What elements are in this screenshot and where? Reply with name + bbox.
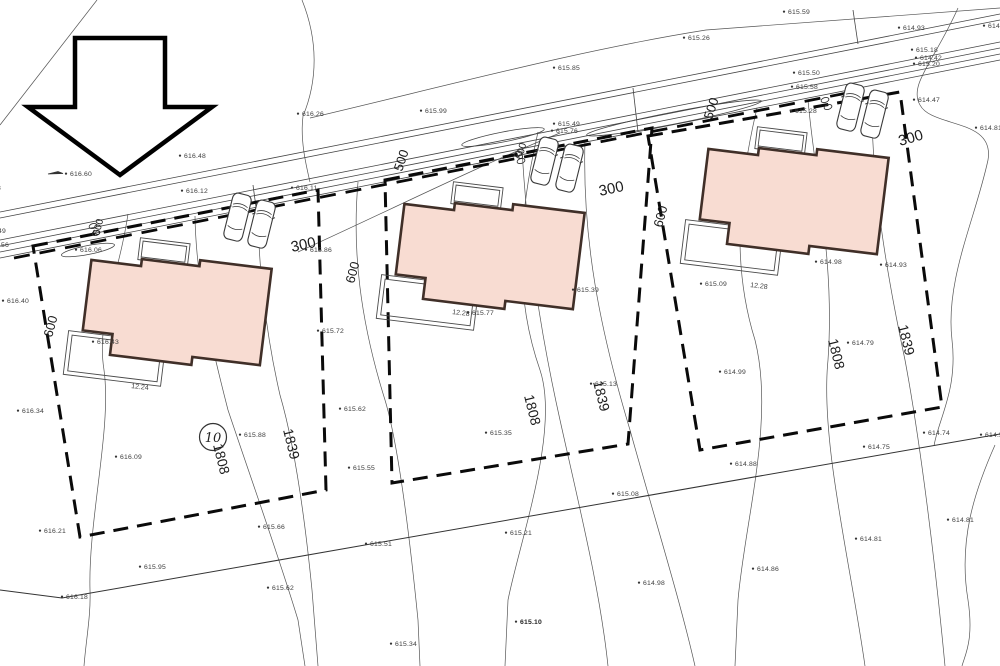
setback-label: 300 <box>597 178 625 200</box>
road-island <box>585 95 762 141</box>
elevation-label: 616.60 <box>70 171 92 178</box>
elevation-dot <box>179 155 181 157</box>
parcel-number-label: 1839 <box>280 427 303 461</box>
elevation-point: 615.55 <box>348 465 375 472</box>
elevation-label: 614.99 <box>724 369 746 376</box>
elevation-dot <box>612 493 614 495</box>
elevation-label: 614.93 <box>885 262 907 269</box>
elevation-point: 614.75 <box>863 444 890 451</box>
elevation-point: 616.49 <box>0 228 6 235</box>
elevation-dot <box>847 342 849 344</box>
house-footprint <box>680 119 890 287</box>
elevation-point: 615.59 <box>783 9 810 16</box>
elevation-point: 615.34 <box>390 641 417 648</box>
elevation-label: 616.11 <box>296 185 318 192</box>
elevation-point: 614.86 <box>752 566 779 573</box>
elevation-point: 616.06 <box>75 247 102 254</box>
elevation-label: 616.26 <box>302 111 324 118</box>
elevation-point: 616.38 <box>0 185 1 192</box>
elevation-dot <box>980 434 982 436</box>
elevation-dot <box>239 434 241 436</box>
elevation-dot <box>572 289 574 291</box>
elevation-label: 614.74 <box>928 430 950 437</box>
elevation-label: 615.55 <box>353 465 375 472</box>
elevation-point: 616.26 <box>297 111 324 118</box>
elevation-point: 615.21 <box>505 530 532 537</box>
elevation-label: 615.50 <box>798 70 820 77</box>
elevation-label: 614.75 <box>868 444 890 451</box>
plot-boundary-3 <box>648 92 942 450</box>
elevation-dot <box>267 587 269 589</box>
road-cross-tick <box>853 10 858 44</box>
elevation-point: 615.08 <box>612 491 639 498</box>
elevation-label: 615.10 <box>520 619 542 626</box>
house-footprint <box>63 230 273 398</box>
elevation-label: 614.88 <box>735 461 757 468</box>
elevation-dot <box>339 408 341 410</box>
elevation-dot <box>923 432 925 434</box>
elevation-point: 615.35 <box>485 430 512 437</box>
elevation-dot <box>317 330 319 332</box>
elevation-point: 616.56 <box>0 242 9 249</box>
elevation-label: 615.62 <box>272 585 294 592</box>
road-cross-tick <box>633 88 638 132</box>
setback-label: 600 <box>514 141 529 160</box>
contour-line <box>310 8 1000 118</box>
elevation-point: 615.49 <box>553 121 580 128</box>
elevation-label: 614.47 <box>918 97 940 104</box>
elevation-label: 616.56 <box>0 242 9 249</box>
elevation-point: 615.62 <box>267 585 294 592</box>
elevation-label: 615.62 <box>344 406 366 413</box>
elevation-label: 615.09 <box>705 281 727 288</box>
elevation-dot <box>390 643 392 645</box>
elevation-point: 615.10 <box>515 619 542 626</box>
elevation-label: 615.99 <box>425 108 447 115</box>
elevation-label: 616.49 <box>0 228 6 235</box>
elevation-label: 615.08 <box>617 491 639 498</box>
benchmark-arrow <box>48 172 63 175</box>
elevation-point: 614.88 <box>730 461 757 468</box>
elevation-label: 614.81 <box>952 517 974 524</box>
elevation-label: 615.76 <box>556 128 578 135</box>
elevation-label: 614.4 <box>988 23 1000 30</box>
elevation-label: 615.58 <box>796 84 818 91</box>
elevation-label: 616.38 <box>0 185 1 192</box>
elevation-dot <box>297 113 299 115</box>
elevation-label: 615.59 <box>788 9 810 16</box>
dimension-label: 12.28 <box>452 309 470 318</box>
dimension-label: 12.28 <box>750 282 768 291</box>
elevation-label: 616.09 <box>120 454 142 461</box>
setback-label: 500 <box>701 96 722 121</box>
elevation-dot <box>348 467 350 469</box>
site-plan-page: 10 616.60616.48616.38616.49616.56616.406… <box>0 0 1000 666</box>
parcel-number-label: 1808 <box>210 442 233 476</box>
elevation-dot <box>139 566 141 568</box>
elevation-dot <box>75 249 77 251</box>
elevation-dot <box>783 11 785 13</box>
elevation-label: 614.98 <box>820 259 842 266</box>
elevation-point: 616.12 <box>181 188 208 195</box>
elevation-dot <box>791 86 793 88</box>
elevation-label: 615.18 <box>916 47 938 54</box>
elevation-point: 615.62 <box>339 406 366 413</box>
elevation-point: 614.74 <box>923 430 950 437</box>
elevation-point: 616.11 <box>291 185 318 192</box>
elevation-dot <box>752 568 754 570</box>
contour-line <box>962 445 995 666</box>
houses <box>63 119 890 398</box>
elevation-point: 615.18 <box>911 47 938 54</box>
elevation-label: 615.21 <box>510 530 532 537</box>
elevation-dot <box>913 63 915 65</box>
site-plan-svg: 10 616.60616.48616.38616.49616.56616.406… <box>0 0 1000 666</box>
elevation-point: 614.5 <box>980 432 1000 439</box>
elevation-dot <box>505 532 507 534</box>
elevation-label: 616.12 <box>186 188 208 195</box>
elevation-label: 615.49 <box>558 121 580 128</box>
elevation-label: 616.06 <box>80 247 102 254</box>
contour-line <box>302 0 314 182</box>
elevation-point: 614.4 <box>983 23 1000 30</box>
setback-label: 600 <box>91 217 106 236</box>
elevation-dot <box>553 67 555 69</box>
elevation-dot <box>790 110 792 112</box>
elevation-dot <box>115 456 117 458</box>
elevation-dot <box>39 530 41 532</box>
elevation-point: 614.93 <box>898 25 925 32</box>
elevation-dot <box>291 187 293 189</box>
setback-label: 300 <box>896 127 925 150</box>
elevation-point: 615.26 <box>683 35 710 42</box>
elevation-dot <box>793 72 795 74</box>
elevation-dot <box>730 463 732 465</box>
elevation-point: 614.81 <box>975 125 1000 132</box>
elevation-point: 615.50 <box>793 70 820 77</box>
elevation-label: 615.85 <box>558 65 580 72</box>
elevation-point: 614.98 <box>815 259 842 266</box>
elevation-dot <box>258 526 260 528</box>
elevation-label: 614.93 <box>903 25 925 32</box>
elevation-dot <box>947 519 949 521</box>
elevation-label: 615.34 <box>395 641 417 648</box>
setback-label: 600 <box>650 204 670 229</box>
elevation-label: 616.34 <box>22 408 44 415</box>
elevation-dot <box>913 99 915 101</box>
elevation-label: 614.5 <box>985 432 1000 439</box>
elevation-dot <box>92 341 94 343</box>
elevation-point: 614.93 <box>880 262 907 269</box>
elevation-point: 614.81 <box>855 536 882 543</box>
elevation-dot <box>975 127 977 129</box>
elevation-point: 614.98 <box>638 580 665 587</box>
elevation-point: 615.09 <box>700 281 727 288</box>
elevation-dot <box>365 543 367 545</box>
elevation-point: 615.85 <box>553 65 580 72</box>
parcel-number-label: 1808 <box>521 393 544 427</box>
elevation-dot <box>2 300 4 302</box>
elevation-dot <box>551 130 553 132</box>
elevation-point: 616.43 <box>92 339 119 346</box>
elevation-label: 616.21 <box>44 528 66 535</box>
parcel-number-label: 1808 <box>825 337 848 371</box>
elevation-point: 615.66 <box>258 524 285 531</box>
elevation-dot <box>983 25 985 27</box>
elevation-point: 616.60 <box>48 171 92 178</box>
elevation-label: 615.39 <box>577 287 599 294</box>
elevation-dot <box>515 621 517 623</box>
elevation-point: 615.95 <box>139 564 166 571</box>
elevation-label: 616.48 <box>184 153 206 160</box>
elevation-dot <box>911 49 913 51</box>
elevation-label: 614.81 <box>860 536 882 543</box>
elevation-label: 615.72 <box>322 328 344 335</box>
elevation-point: 616.09 <box>115 454 142 461</box>
elevation-dot <box>420 110 422 112</box>
dimension-label: 12.24 <box>131 383 149 392</box>
elevation-label: 616.18 <box>66 594 88 601</box>
elevation-label: 616.43 <box>97 339 119 346</box>
elevation-label: 615.66 <box>263 524 285 531</box>
elevation-label: 614.79 <box>852 340 874 347</box>
contour-line <box>917 8 988 446</box>
elevation-dot <box>61 596 63 598</box>
setback-label: 500 <box>391 148 412 173</box>
elevation-label: 614.86 <box>757 566 779 573</box>
elevation-dot <box>898 27 900 29</box>
elevation-dot <box>815 261 817 263</box>
parcel-number-label: 1839 <box>895 323 918 357</box>
elevation-label: 615.88 <box>244 432 266 439</box>
elevation-point: 616.40 <box>2 298 29 305</box>
elevation-label: 615.35 <box>490 430 512 437</box>
elevation-label: 616.40 <box>7 298 29 305</box>
elevation-point: 615.58 <box>791 84 818 91</box>
elevation-point: 614.99 <box>719 369 746 376</box>
elevation-point: 616.48 <box>179 153 206 160</box>
elevation-dot <box>700 283 702 285</box>
elevation-dot <box>683 37 685 39</box>
elevation-label: 614.81 <box>980 125 1000 132</box>
elevation-label: 615.95 <box>144 564 166 571</box>
elevation-label: 615.77 <box>472 310 494 317</box>
car <box>528 136 562 187</box>
elevation-dot <box>485 432 487 434</box>
elevation-dot <box>863 446 865 448</box>
elevation-point: 615.76 <box>551 128 578 135</box>
elevation-point: 616.21 <box>39 528 66 535</box>
elevation-label: 615.51 <box>370 541 392 548</box>
elevation-dot <box>65 173 67 175</box>
elevation-dot <box>17 410 19 412</box>
elevation-dot <box>855 538 857 540</box>
elevation-label: 615.20 <box>918 61 940 68</box>
elevation-dot <box>915 57 917 59</box>
elevation-point: 616.34 <box>17 408 44 415</box>
elevation-dot <box>719 371 721 373</box>
elevation-point: 615.88 <box>239 432 266 439</box>
elevation-label: 615.28 <box>795 108 817 115</box>
elevation-point: 614.47 <box>913 97 940 104</box>
elevation-dot <box>181 190 183 192</box>
elevation-dot <box>638 582 640 584</box>
elevation-label: 614.98 <box>643 580 665 587</box>
elevation-dot <box>553 123 555 125</box>
elevation-point: 615.99 <box>420 108 447 115</box>
elevation-dot <box>880 264 882 266</box>
elevation-point: 614.79 <box>847 340 874 347</box>
elevation-label: 615.26 <box>688 35 710 42</box>
elevation-point: 614.81 <box>947 517 974 524</box>
